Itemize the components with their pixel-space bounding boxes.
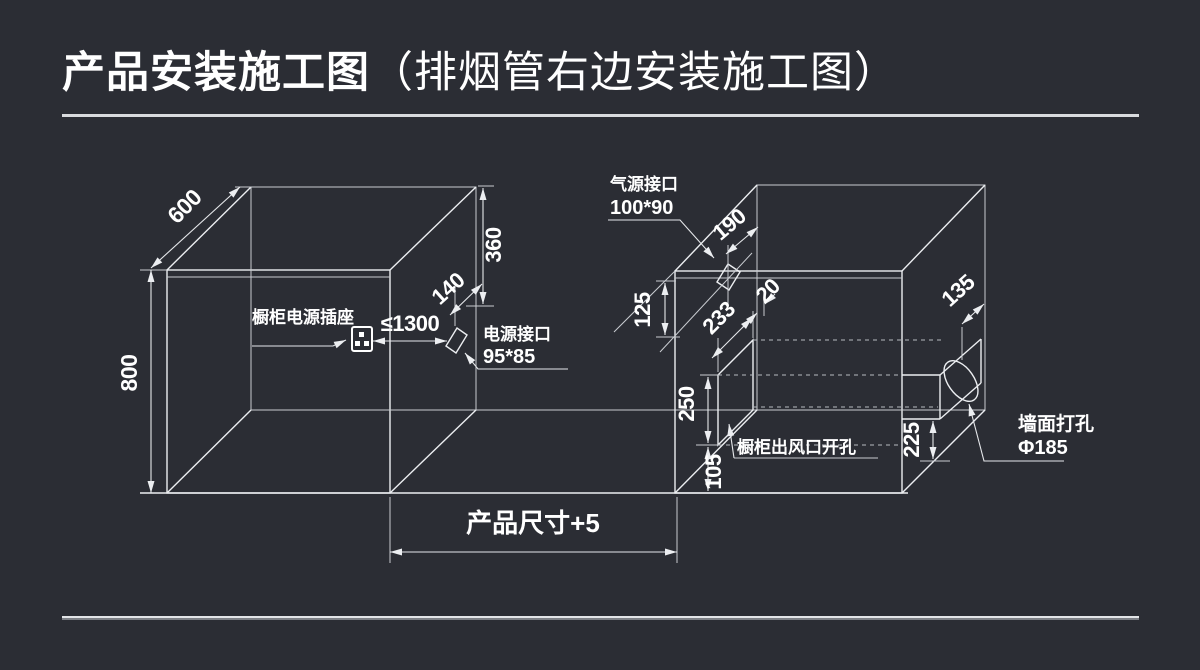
dim-gas-port-offset: 190 — [708, 203, 758, 254]
wall-hole-callout: 墙面打孔 Φ185 — [969, 404, 1094, 461]
dim-power-port-drop-value: 360 — [481, 227, 506, 262]
duct-outlet-opening — [718, 340, 753, 445]
power-port-callout: 电源接口 95*85 — [465, 324, 568, 369]
dim-hole-depth-value: 135 — [937, 269, 980, 311]
wall-hole-title: 墙面打孔 — [1018, 412, 1094, 435]
outlet-label: 橱柜出风口开孔 — [737, 437, 856, 457]
power-socket-icon — [352, 327, 372, 351]
dim-top-drop: 125 — [630, 281, 680, 337]
dim-product-gap: 产品尺寸+5 — [390, 497, 677, 563]
left-cabinet-outline — [167, 187, 476, 493]
socket-callout: 橱柜电源插座 — [252, 307, 354, 346]
gas-port-title: 气源接口 — [609, 174, 678, 194]
dim-left-depth-value: 600 — [162, 184, 206, 228]
dim-socket-distance: ≤1300 — [373, 311, 447, 341]
dim-hole-height: 225 — [899, 421, 950, 461]
diagram-svg: 600 800 橱柜电源插座 ≤1300 1 — [0, 0, 1200, 670]
dim-duct-depth-value: 233 — [697, 296, 740, 339]
power-port — [446, 328, 467, 353]
dim-wall-gap-value: 20 — [751, 273, 785, 307]
installation-diagram-page: 产品安装施工图（排烟管右边安装施工图） — [0, 0, 1200, 670]
dim-left-depth: 600 — [140, 184, 251, 270]
dim-hole-height-value: 225 — [899, 422, 924, 457]
dim-top-drop-value: 125 — [630, 292, 655, 327]
dim-hole-depth: 135 — [937, 269, 984, 360]
dim-left-height: 800 — [116, 270, 151, 493]
wall-hole-ellipse — [937, 355, 985, 408]
room-lines — [140, 410, 985, 493]
dim-power-port-drop: 360 — [466, 186, 506, 306]
gas-port-callout: 气源接口 100*90 — [608, 174, 714, 258]
power-port-size: 95*85 — [483, 346, 535, 368]
gas-port-size: 100*90 — [610, 197, 673, 219]
dim-outlet-floor-gap-value: 105 — [701, 454, 726, 489]
dim-left-height-value: 800 — [116, 355, 142, 392]
dim-socket-distance-value: ≤1300 — [381, 311, 440, 336]
wall-hole-size: Φ185 — [1018, 437, 1068, 459]
power-port-title: 电源接口 — [483, 324, 551, 344]
outlet-callout: 橱柜出风口开孔 — [729, 424, 878, 458]
socket-label: 橱柜电源插座 — [252, 307, 354, 327]
dim-duct-depth: 233 — [697, 296, 757, 372]
dim-power-port-depth-value: 140 — [427, 267, 470, 309]
dim-wall-gap: 20 — [742, 273, 785, 328]
dim-product-gap-value: 产品尺寸+5 — [466, 508, 600, 538]
dim-outlet-height-value: 250 — [674, 386, 699, 421]
